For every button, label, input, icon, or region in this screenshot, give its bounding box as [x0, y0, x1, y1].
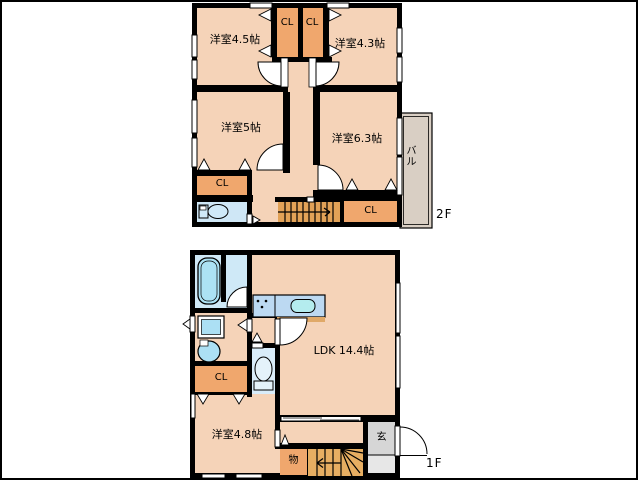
- entrance-step: [368, 455, 395, 473]
- basin-icon: [198, 340, 220, 362]
- toilet-icon: [199, 205, 228, 219]
- entrance-label: 玄: [368, 432, 395, 444]
- room-label-4-3: 洋室4.3帖: [320, 38, 400, 50]
- room-label-6-3: 洋室6.3帖: [316, 133, 398, 145]
- closet-label-top-right: CL: [305, 17, 319, 28]
- floor-plan-drawing: [0, 0, 638, 480]
- room-label-4-5: 洋室4.5帖: [197, 34, 273, 46]
- closet-label-bottom-left: CL: [197, 178, 247, 190]
- room-label-5: 洋室5帖: [203, 122, 279, 134]
- stairs-icon: [308, 449, 363, 476]
- closet-label-1f: CL: [195, 372, 247, 384]
- toilet-icon: [254, 357, 273, 390]
- floor1-label: 1F: [426, 457, 443, 469]
- closet-top-left-area: [277, 8, 298, 57]
- storage-label: 物: [280, 455, 307, 467]
- room-label-4-8: 洋室4.8帖: [194, 429, 280, 441]
- closet-label-top-left: CL: [280, 17, 294, 28]
- balcony-label: バル: [405, 146, 418, 168]
- closet-label-bottom-right: CL: [344, 205, 397, 217]
- washing-machine-icon: [198, 316, 224, 338]
- floor2-label: 2F: [436, 208, 453, 220]
- room-label-ldk: LDK 14.4帖: [294, 345, 394, 357]
- stairs-icon: [278, 202, 340, 222]
- bathtub-icon: [198, 258, 220, 304]
- floor-plan-image: 洋室4.5帖 CL CL 洋室4.3帖 洋室5帖 洋室6.3帖 バル CL CL…: [0, 0, 638, 480]
- kitchen-sink-icon: [291, 300, 315, 313]
- balcony-area: [400, 113, 432, 228]
